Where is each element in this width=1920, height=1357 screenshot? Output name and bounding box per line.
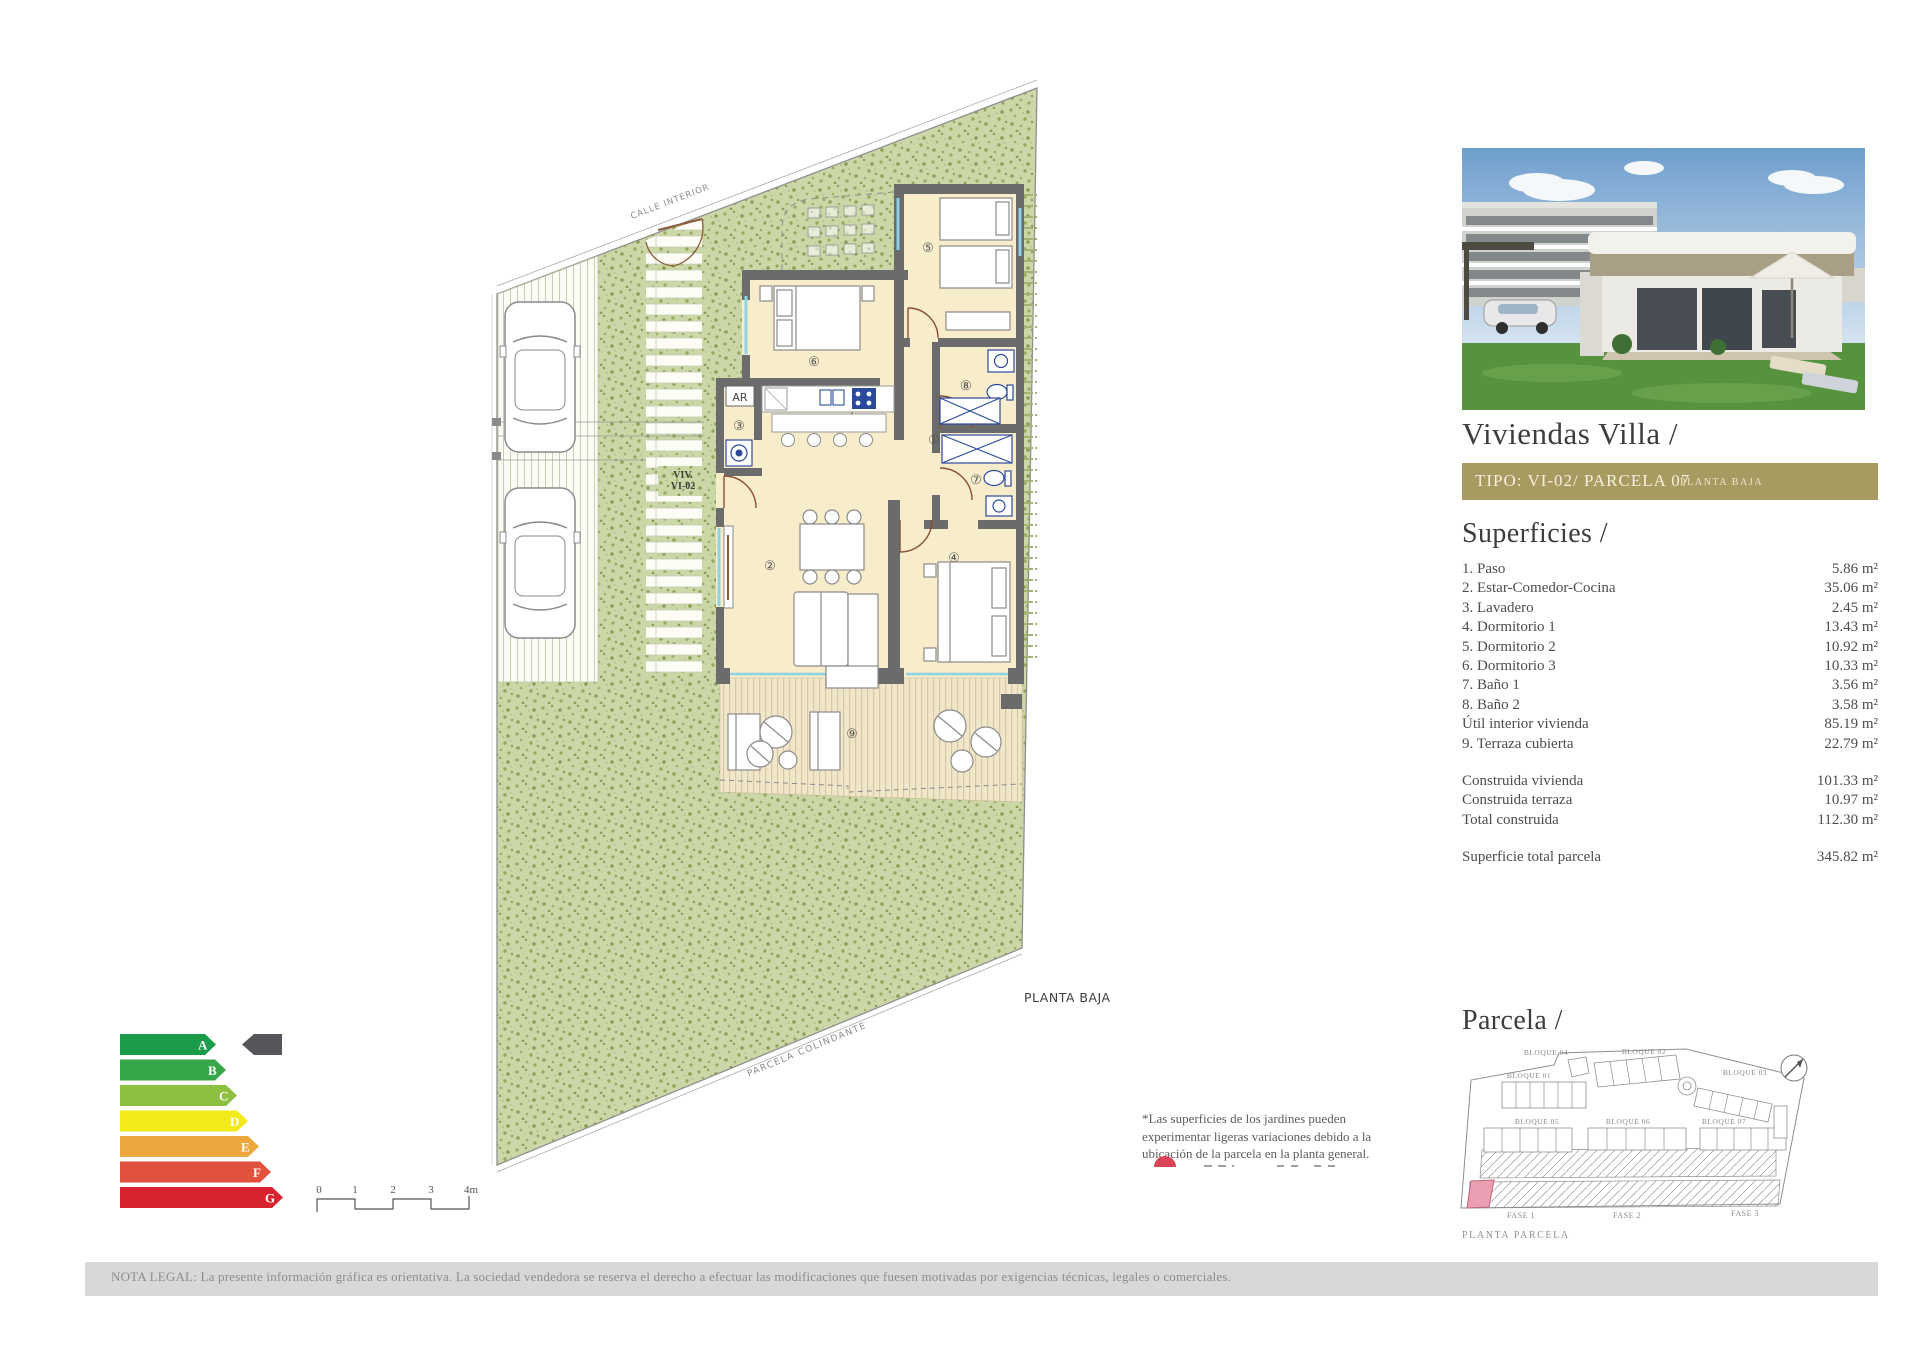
svg-text:C: C	[219, 1089, 228, 1104]
table-row: 3. Lavadero2.45 m²	[1462, 599, 1878, 618]
table-row: 4. Dormitorio 113.43 m²	[1462, 618, 1878, 637]
svg-text:BLOQUE 01: BLOQUE 01	[1507, 1071, 1551, 1080]
svg-text:①: ①	[928, 432, 940, 447]
svg-text:FASE 1: FASE 1	[1507, 1211, 1535, 1220]
table-row: 7. Baño 13.56 m²	[1462, 676, 1878, 695]
parked-car-2	[500, 488, 580, 638]
brochure-page: AR	[0, 0, 1920, 1357]
svg-text:G: G	[265, 1191, 275, 1206]
svg-text:⑥: ⑥	[808, 354, 820, 369]
legend-semicircle	[1154, 1156, 1176, 1167]
svg-text:⑤: ⑤	[922, 240, 934, 255]
boundary-marker	[492, 452, 501, 460]
table-row: 6. Dormitorio 310.33 m²	[1462, 657, 1878, 676]
page-title: Viviendas Villa /	[1462, 416, 1678, 452]
table-row: 5. Dormitorio 210.92 m²	[1462, 638, 1878, 657]
energy-bar-f	[120, 1162, 271, 1183]
svg-text:F: F	[253, 1165, 261, 1180]
svg-text:⑨: ⑨	[846, 726, 858, 741]
note-legend	[1142, 1150, 1402, 1180]
type-bar-main: TIPO: VI-02/ PARCELA 07	[1475, 471, 1690, 491]
table-row: Útil interior vivienda85.19 m²	[1462, 715, 1878, 734]
energy-indicator-arrow	[242, 1034, 282, 1055]
svg-text:FASE 3: FASE 3	[1731, 1209, 1759, 1218]
svg-text:A: A	[198, 1038, 208, 1053]
svg-text:D: D	[230, 1114, 239, 1129]
type-bar-floor: PLANTA BAJA	[1680, 477, 1763, 488]
storage-label: AR	[732, 391, 748, 404]
street-label: CALLE INTERIOR	[629, 182, 711, 221]
energy-bar-d	[120, 1111, 248, 1132]
svg-text:3: 3	[428, 1184, 434, 1196]
svg-text:BLOQUE 03: BLOQUE 03	[1723, 1068, 1767, 1077]
parcel-total-row: Superficie total parcela345.82 m²	[1462, 848, 1878, 867]
svg-text:④: ④	[948, 550, 960, 565]
table-row: Construida terraza10.97 m²	[1462, 791, 1878, 810]
tv-unit	[724, 526, 733, 608]
energy-bar-e	[120, 1136, 259, 1157]
bed-dorm3	[760, 286, 874, 350]
table-row: 1. Paso5.86 m²	[1462, 560, 1878, 579]
svg-text:⑧: ⑧	[960, 378, 972, 393]
svg-text:E: E	[241, 1140, 250, 1155]
table-row: 9. Terraza cubierta22.79 m²	[1462, 735, 1878, 754]
dining-set	[800, 510, 864, 584]
site-plan: BLOQUE 01 BLOQUE 02 BLOQUE 03 BLOQUE 04 …	[1458, 1046, 1818, 1232]
table-row: Construida vivienda101.33 m²	[1462, 772, 1878, 791]
site-plan-caption: PLANTA PARCELA	[1462, 1230, 1570, 1241]
svg-text:2: 2	[390, 1184, 396, 1196]
superficies-heading: Superficies /	[1462, 518, 1608, 550]
villa-render-image	[1462, 148, 1865, 410]
garden-path	[646, 218, 702, 674]
svg-text:4m: 4m	[464, 1184, 479, 1196]
floor-label: PLANTA BAJA	[1024, 990, 1111, 1005]
scale-bar: 0 1 2 3 4m	[315, 1182, 485, 1218]
svg-text:②: ②	[764, 558, 776, 573]
table-row: 8. Baño 23.58 m²	[1462, 696, 1878, 715]
energy-rating-chart: A B C D E F G	[120, 1032, 320, 1217]
floor-plan: AR	[488, 80, 1128, 1230]
fase-labels: FASE 1 FASE 2 FASE 3	[1507, 1209, 1759, 1220]
svg-text:BLOQUE 07: BLOQUE 07	[1702, 1117, 1746, 1126]
svg-text:1: 1	[352, 1184, 358, 1196]
compass-icon	[1781, 1055, 1807, 1081]
parcel-strip-upper	[1480, 1148, 1776, 1178]
parcela-heading: Parcela /	[1462, 1005, 1563, 1037]
parked-car-1	[500, 302, 580, 452]
table-row: 2. Estar-Comedor-Cocina35.06 m²	[1462, 579, 1878, 598]
svg-text:⑦: ⑦	[970, 472, 982, 487]
svg-text:BLOQUE 05: BLOQUE 05	[1515, 1117, 1559, 1126]
legal-note: NOTA LEGAL: La presente información gráf…	[85, 1262, 1878, 1296]
parcel-strip-lower	[1468, 1180, 1780, 1208]
type-bar: TIPO: VI-02/ PARCELA 07 PLANTA BAJA	[1462, 463, 1878, 500]
table-row: Total construida112.30 m²	[1462, 811, 1878, 830]
svg-text:0: 0	[316, 1184, 322, 1196]
highlighted-parcel	[1467, 1180, 1494, 1208]
svg-text:B: B	[208, 1063, 217, 1078]
svg-text:BLOQUE 06: BLOQUE 06	[1606, 1117, 1650, 1126]
exterior-hatch	[1024, 192, 1037, 662]
svg-text:VIV.: VIV.	[673, 470, 693, 481]
construida-table: Construida vivienda101.33 m² Construida …	[1462, 772, 1878, 830]
boundary-marker	[492, 418, 501, 426]
superficies-table: 1. Paso5.86 m² 2. Estar-Comedor-Cocina35…	[1462, 560, 1878, 754]
svg-text:FASE 2: FASE 2	[1613, 1211, 1641, 1220]
svg-text:VI-02: VI-02	[671, 481, 695, 492]
svg-text:BLOQUE 02: BLOQUE 02	[1622, 1047, 1666, 1056]
svg-text:BLOQUE 04: BLOQUE 04	[1524, 1048, 1568, 1057]
svg-text:③: ③	[733, 418, 745, 433]
unit-label: VIV. VI-02	[671, 470, 695, 492]
energy-bar-g	[120, 1187, 283, 1208]
